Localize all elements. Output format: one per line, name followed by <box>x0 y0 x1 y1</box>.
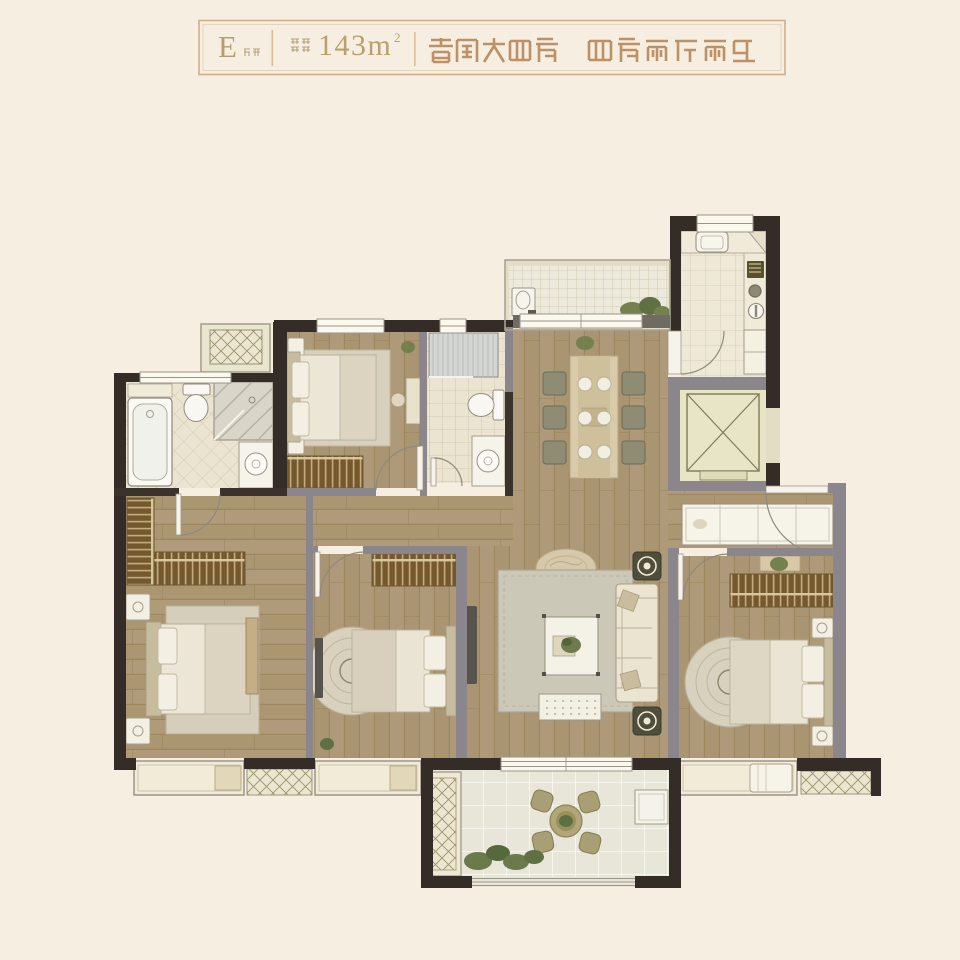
svg-text:E: E <box>218 29 237 64</box>
svg-text:143m: 143m <box>318 29 392 62</box>
svg-text:2: 2 <box>394 30 401 45</box>
